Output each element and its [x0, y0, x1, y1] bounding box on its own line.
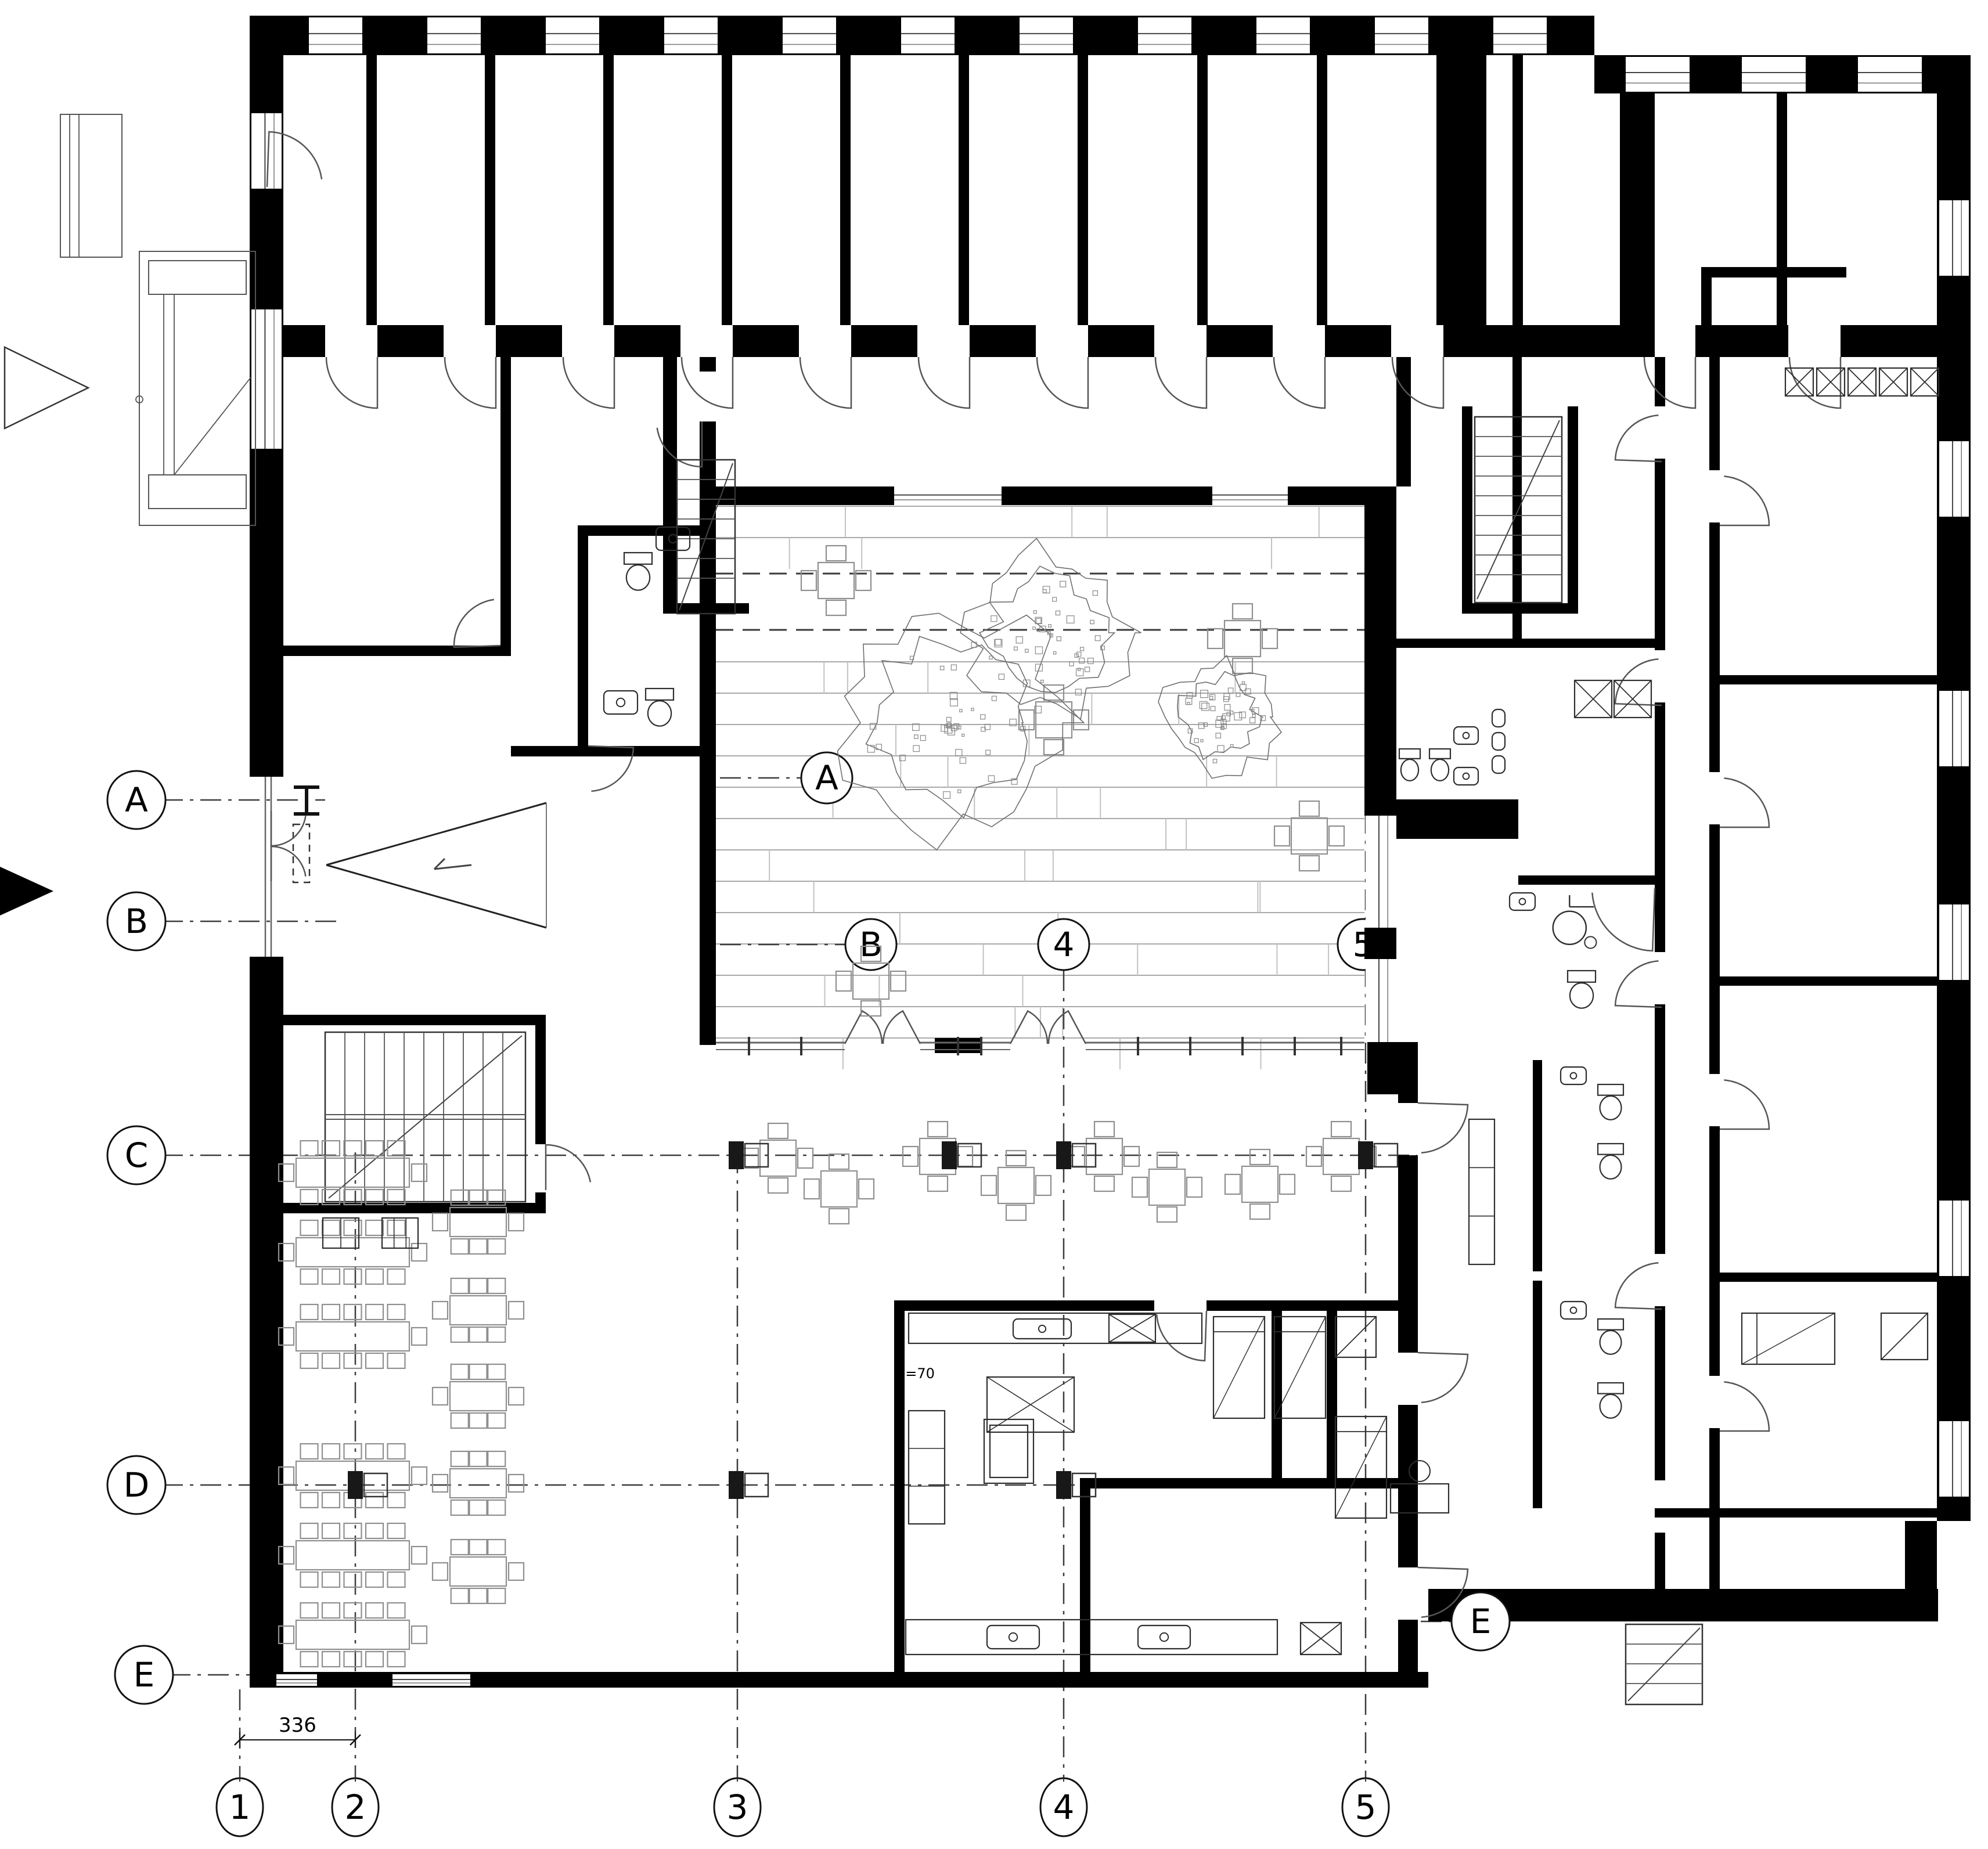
door-swing: [454, 600, 500, 647]
annotations: h=70: [896, 1365, 935, 1382]
grid-bubble-label-A: A: [125, 780, 148, 820]
sink-icon: [1009, 1633, 1017, 1641]
door-swing: [546, 1145, 590, 1190]
filled-triangle-marker-icon: [0, 867, 53, 916]
door-swing: [326, 357, 377, 408]
door-swing: [800, 357, 851, 408]
toilet-icon: [1600, 1096, 1622, 1120]
grid-bubble-label-D: D: [124, 1465, 150, 1505]
grid-bubble-label-2: 2: [345, 1787, 366, 1827]
grid-bubble-label-3: 3: [727, 1787, 748, 1827]
dimension: 336: [235, 1714, 361, 1748]
door-swing: [1418, 1103, 1468, 1153]
grid-bubble-label-A: A: [815, 758, 838, 798]
door-swing: [1157, 1311, 1207, 1361]
door-swing: [271, 811, 305, 846]
toilet-icon: [648, 701, 671, 726]
sink-icon: [1571, 1073, 1577, 1079]
door-swing: [1720, 1382, 1769, 1431]
door-swing: [1049, 1011, 1086, 1044]
toilet-icon: [1600, 1331, 1622, 1354]
door-swing: [1644, 357, 1695, 408]
wheelchair-icon: [1584, 936, 1596, 948]
door-swing: [919, 357, 970, 408]
annotation-label: h=70: [896, 1365, 935, 1382]
grid-bubble-label-5: 5: [1355, 1787, 1377, 1827]
door-swing: [1418, 1353, 1468, 1403]
grid-bubble-label-4: 4: [1053, 1787, 1075, 1827]
floor-plan: AB4512345ABCDEE336h=70: [0, 0, 1988, 1849]
grid-bubble-label-E: E: [134, 1655, 155, 1695]
door-swing: [1615, 961, 1662, 1007]
sink-icon: [1571, 1307, 1577, 1314]
door-swing: [1010, 1011, 1047, 1044]
door-swing: [1720, 476, 1769, 525]
toilet-icon: [626, 565, 650, 590]
door-swing: [1037, 357, 1088, 408]
sink-icon: [1039, 1325, 1046, 1332]
grid-lines: [162, 778, 1455, 1782]
door-swing: [445, 357, 496, 408]
door-swing: [1615, 659, 1662, 705]
toilet-icon: [1570, 983, 1593, 1008]
door-swing: [1789, 357, 1841, 408]
tree-icon: [1177, 672, 1262, 760]
walls: [250, 16, 1971, 1688]
toilet-icon: [1600, 1394, 1622, 1418]
sink-icon: [617, 698, 625, 707]
tree-icon: [838, 613, 1084, 850]
interior-grid-bubbles: AB45: [801, 752, 1389, 970]
grid-bubble-label-1: 1: [229, 1787, 251, 1827]
door-swing: [1720, 778, 1769, 827]
floor-plan-page: AB4512345ABCDEE336h=70: [0, 0, 1988, 1849]
door-swing: [1615, 415, 1662, 462]
toilet-icon: [1431, 759, 1449, 781]
grid-bubble-label-E-right: E: [1470, 1602, 1492, 1641]
door-swing: [1155, 357, 1207, 408]
door-swing: [883, 1011, 920, 1044]
grid-bubble-label-B: B: [859, 925, 883, 964]
door-swing: [1720, 1080, 1769, 1129]
sink-icon: [1463, 773, 1470, 780]
door-swing: [1615, 1263, 1662, 1309]
open-triangle-marker-icon: [5, 347, 88, 428]
door-swing: [1592, 888, 1655, 951]
door-swing: [1274, 357, 1325, 408]
wheelchair-icon: [1553, 911, 1586, 945]
door-swing: [271, 846, 305, 881]
sink-icon: [1463, 733, 1470, 739]
fixtures: [323, 368, 1939, 1655]
toilet-icon: [1600, 1155, 1622, 1179]
grid-bubble-label-C: C: [125, 1136, 149, 1175]
door-swing: [563, 357, 614, 408]
toilet-icon: [1401, 759, 1418, 781]
atrium-trees: [838, 538, 1282, 850]
sink-icon: [1160, 1633, 1168, 1641]
sink-icon: [1519, 899, 1526, 905]
dimension-label: 336: [279, 1714, 316, 1737]
grid-bubble-label-B: B: [125, 902, 148, 941]
grid-bubble-label-4: 4: [1053, 925, 1075, 964]
